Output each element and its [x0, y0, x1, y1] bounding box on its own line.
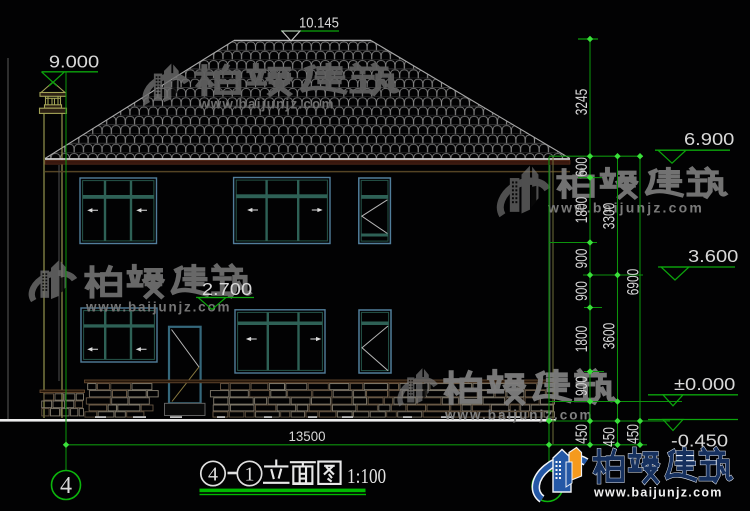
- svg-text:450: 450: [625, 424, 644, 444]
- svg-text:1:100: 1:100: [347, 465, 386, 488]
- svg-text:4: 4: [60, 473, 72, 499]
- svg-text:1: 1: [245, 464, 255, 486]
- svg-text:600: 600: [573, 157, 592, 177]
- svg-text:6.900: 6.900: [684, 129, 734, 148]
- svg-text:450: 450: [573, 424, 592, 444]
- svg-text:4: 4: [208, 464, 218, 486]
- svg-text:13500: 13500: [289, 429, 326, 444]
- svg-text:9.000: 9.000: [49, 52, 99, 71]
- svg-text:www.baijunjz.com: www.baijunjz.com: [593, 486, 723, 500]
- svg-text:900: 900: [573, 376, 592, 396]
- svg-text:www.baijunjz.com: www.baijunjz.com: [547, 200, 704, 216]
- svg-text:450: 450: [601, 427, 620, 447]
- svg-text:±0.000: ±0.000: [674, 374, 735, 393]
- svg-text:3245: 3245: [573, 89, 592, 115]
- svg-text:3.600: 3.600: [688, 246, 738, 265]
- svg-text:1800: 1800: [573, 326, 592, 352]
- svg-text:www.baijunjz.com: www.baijunjz.com: [198, 97, 335, 112]
- svg-text:900: 900: [573, 249, 592, 269]
- svg-text:www.baijunjz.com: www.baijunjz.com: [444, 408, 594, 423]
- svg-text:-0.450: -0.450: [671, 431, 728, 450]
- svg-text:2.700: 2.700: [202, 279, 252, 298]
- svg-text:3600: 3600: [601, 323, 620, 349]
- svg-text:10.145: 10.145: [299, 15, 339, 31]
- svg-text:6900: 6900: [625, 269, 644, 295]
- svg-text:3300: 3300: [601, 203, 620, 229]
- svg-text:900: 900: [573, 281, 592, 301]
- svg-text:1800: 1800: [573, 197, 592, 223]
